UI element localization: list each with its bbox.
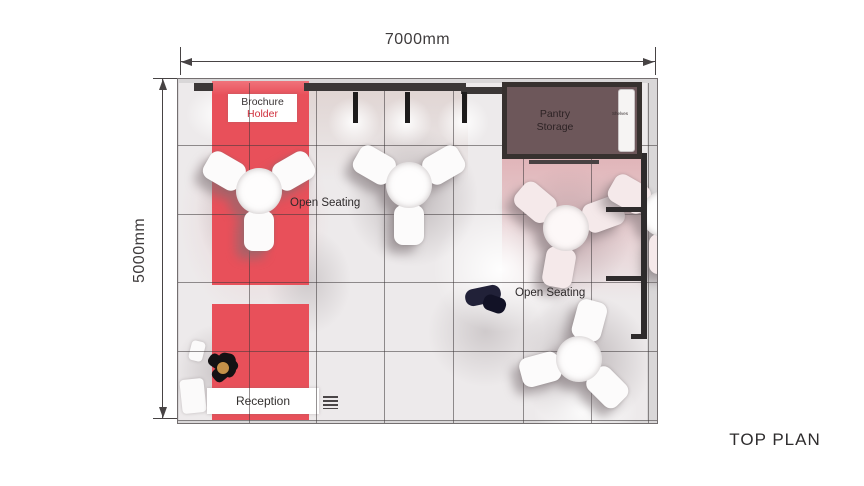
brochure-holder-label: Brochure Holder: [228, 94, 297, 122]
brochure-holder-line1: Brochure: [241, 96, 284, 108]
pantry-ledge: [529, 160, 599, 164]
shelves-unit: [618, 89, 635, 152]
page-title: TOP PLAN: [700, 430, 850, 450]
open-seating-label-left: Open Seating: [290, 197, 360, 209]
height-dimension-line: [162, 79, 163, 418]
top-wall: [461, 87, 508, 94]
grid-line: [316, 83, 317, 424]
person-figure: [465, 283, 515, 317]
height-dimension-label: 5000mm: [131, 175, 149, 325]
reception-text: Reception: [236, 394, 290, 408]
reception-label: Reception: [207, 388, 319, 414]
top-plan-page: 7000mm 5000mm: [0, 0, 864, 486]
table-top: [543, 205, 589, 251]
arrowhead-icon: [159, 407, 167, 418]
shelves-label: Shelves: [603, 111, 637, 116]
pantry-label-line1: Pantry: [507, 108, 603, 121]
ceiling-light: [353, 92, 358, 123]
wall-stub: [606, 207, 643, 212]
seat: [649, 234, 658, 274]
arrowhead-icon: [643, 58, 654, 66]
right-wall: [641, 153, 647, 339]
top-wall: [304, 83, 466, 91]
table-top: [556, 336, 602, 382]
doormat: [323, 396, 338, 409]
wall-stub: [606, 276, 643, 281]
dimension-tick: [655, 47, 656, 75]
width-dimension-line: [181, 61, 655, 62]
width-dimension-label: 7000mm: [177, 31, 658, 49]
reception-desk: [179, 378, 206, 414]
grid-line: [384, 83, 385, 424]
person-figure: [205, 351, 245, 387]
ceiling-light: [462, 92, 467, 123]
table-top: [236, 168, 282, 214]
pantry-storage-room: Pantry Storage: [502, 82, 642, 159]
grid-line: [178, 420, 658, 421]
ceiling-light: [405, 92, 410, 123]
person-head: [216, 361, 230, 375]
table-top: [386, 162, 432, 208]
arrowhead-icon: [181, 58, 192, 66]
open-seating-label-right: Open Seating: [515, 287, 585, 299]
arrowhead-icon: [159, 79, 167, 90]
brochure-holder-line2: Holder: [247, 108, 278, 120]
top-wall: [194, 83, 213, 91]
grid-line: [178, 282, 658, 283]
grid-line: [453, 83, 454, 424]
pantry-label-line2: Storage: [507, 121, 603, 134]
seat: [244, 211, 274, 251]
seat: [394, 205, 424, 245]
floor-plan: Brochure Holder Reception: [177, 78, 658, 424]
wall-stub: [631, 334, 647, 339]
